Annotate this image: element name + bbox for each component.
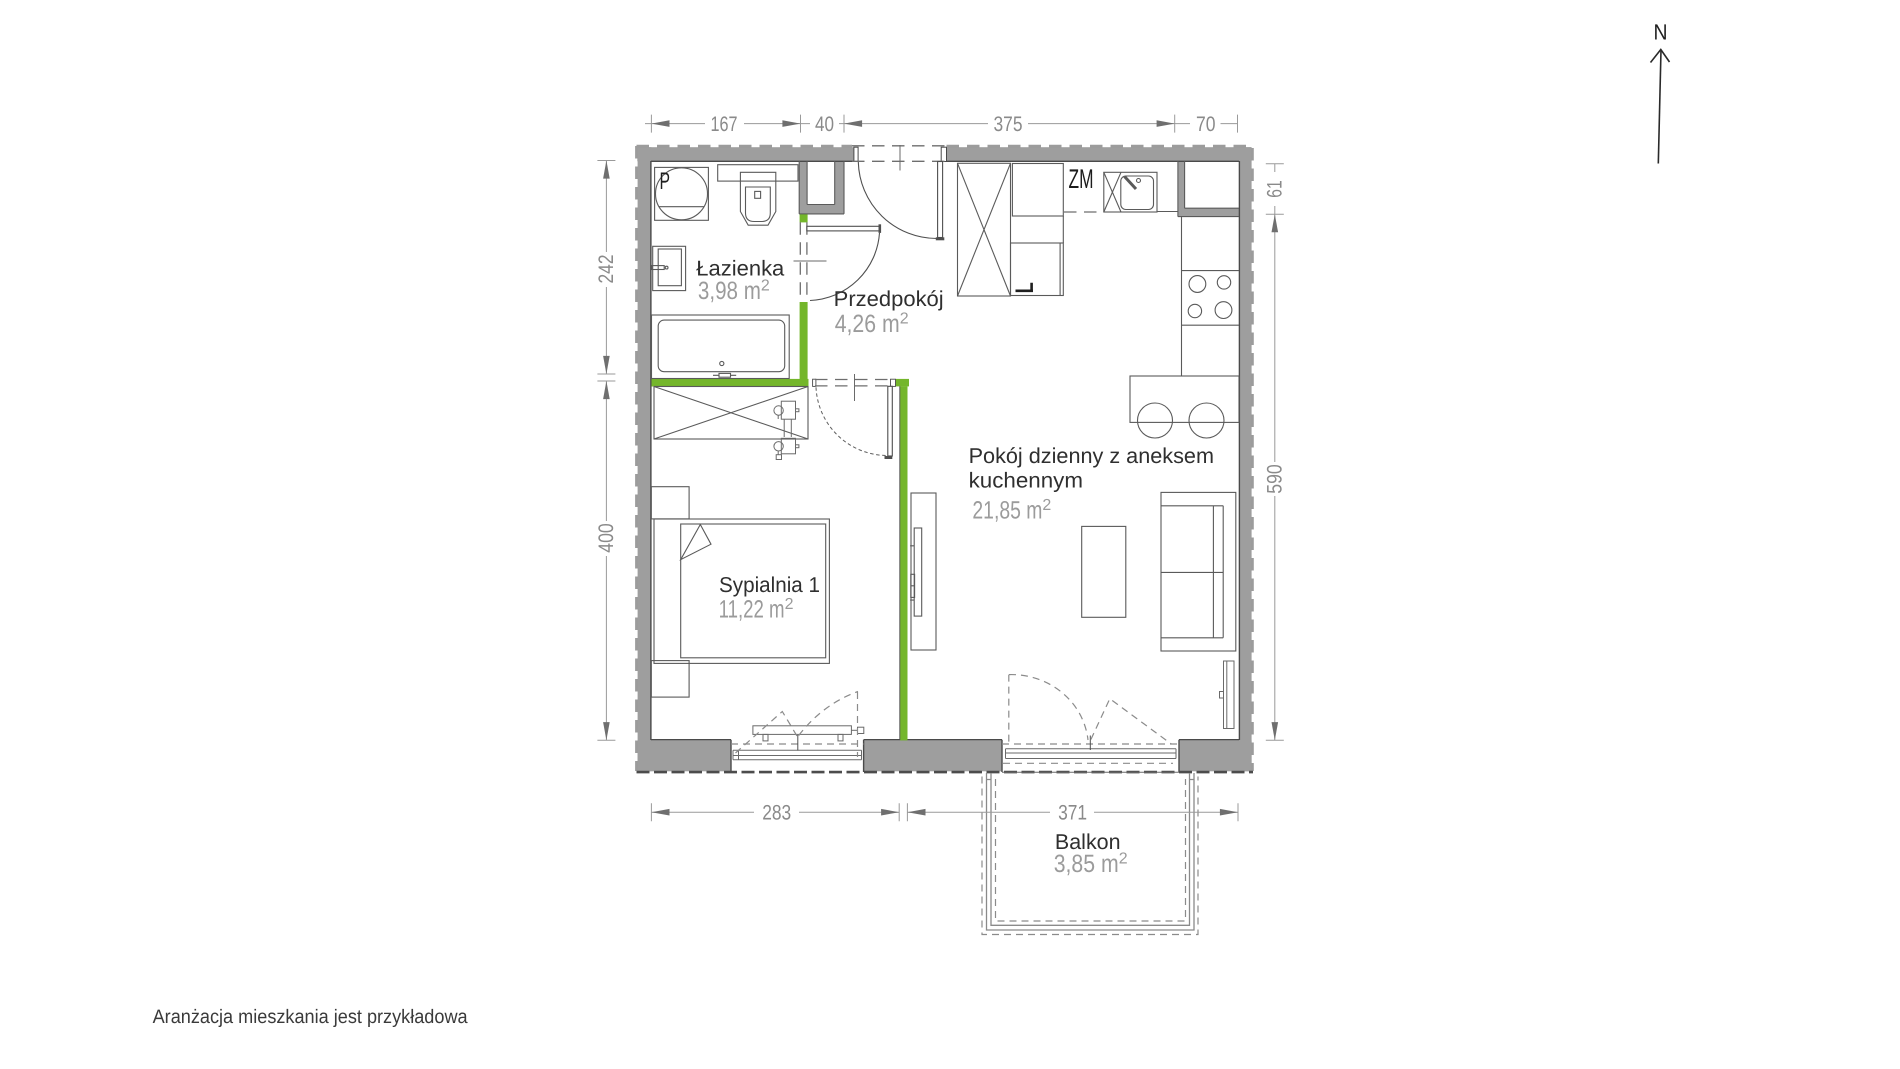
svg-text:167: 167	[711, 113, 738, 136]
svg-text:3,98 m2: 3,98 m2	[698, 277, 770, 305]
svg-text:3,85 m2: 3,85 m2	[1054, 850, 1128, 878]
svg-text:ZM: ZM	[1069, 164, 1094, 194]
svg-text:Przedpokój: Przedpokój	[834, 287, 944, 311]
svg-text:283: 283	[762, 802, 791, 825]
svg-text:400: 400	[595, 523, 618, 553]
svg-text:11,22 m2: 11,22 m2	[719, 596, 794, 624]
svg-text:375: 375	[994, 113, 1023, 136]
svg-text:N: N	[1654, 20, 1668, 45]
svg-text:70: 70	[1196, 113, 1216, 136]
svg-text:kuchennym: kuchennym	[969, 469, 1083, 493]
svg-text:Sypialnia 1: Sypialnia 1	[719, 573, 820, 597]
svg-text:40: 40	[815, 113, 834, 136]
svg-text:P: P	[660, 168, 671, 195]
svg-text:242: 242	[595, 255, 618, 284]
svg-text:590: 590	[1263, 464, 1286, 494]
svg-text:61: 61	[1263, 180, 1286, 198]
svg-text:21,85 m2: 21,85 m2	[972, 497, 1051, 525]
svg-text:4,26 m2: 4,26 m2	[835, 310, 909, 338]
svg-text:Aranżacja mieszkania jest przy: Aranżacja mieszkania jest przykładowa	[153, 1006, 468, 1028]
svg-text:Pokój dzienny z aneksem: Pokój dzienny z aneksem	[969, 444, 1214, 468]
svg-text:371: 371	[1058, 802, 1087, 825]
